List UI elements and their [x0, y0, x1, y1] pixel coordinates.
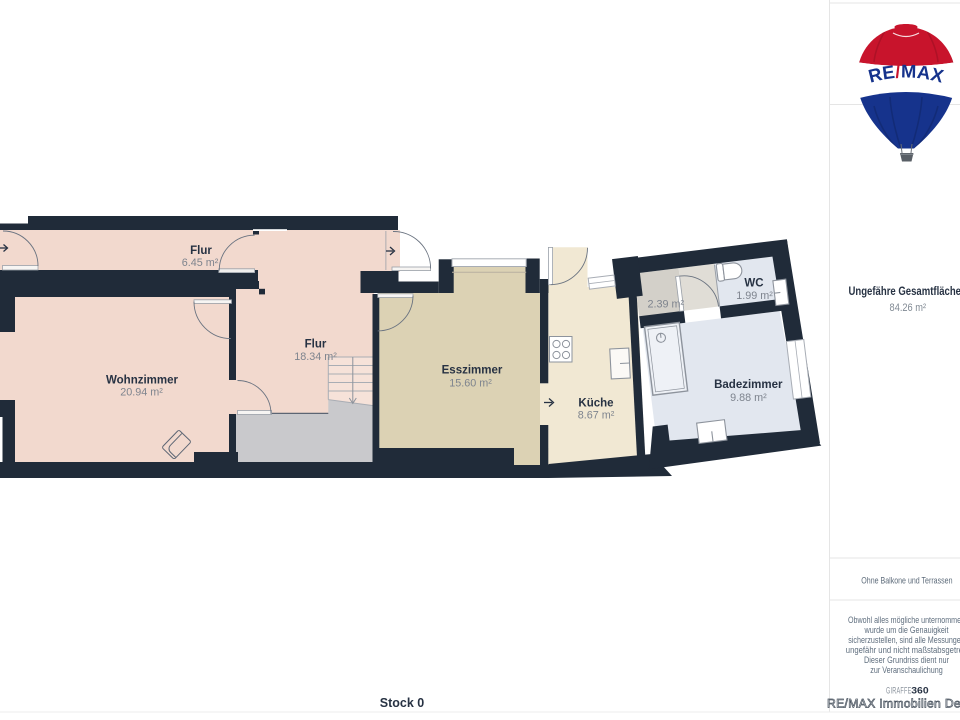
svg-text:Esszimmer: Esszimmer: [442, 364, 503, 376]
svg-text:wurde um die Genauigkeit: wurde um die Genauigkeit: [864, 625, 949, 635]
svg-text:Wohnzimmer: Wohnzimmer: [106, 375, 179, 387]
svg-text:zur Veranschaulichung: zur Veranschaulichung: [870, 665, 943, 675]
svg-text:6.45 m²: 6.45 m²: [182, 257, 219, 269]
svg-text:Badezimmer: Badezimmer: [714, 379, 783, 391]
svg-text:ungefähr und nicht maßstabsget: ungefähr und nicht maßstabsgetreu: [846, 645, 960, 655]
svg-text:20.94 m²: 20.94 m²: [120, 387, 163, 399]
svg-text:2.39 m²: 2.39 m²: [647, 299, 684, 311]
svg-text:sicherzustellen, sind alle Mes: sicherzustellen, sind alle Messungen: [848, 635, 960, 645]
svg-text:GIRAFFE: GIRAFFE: [886, 686, 912, 696]
svg-text:RE/MAX Immobilien Deutschland: RE/MAX Immobilien Deutschland: [827, 696, 960, 710]
svg-text:1.99 m²: 1.99 m²: [736, 290, 773, 302]
svg-text:Flur: Flur: [305, 339, 327, 351]
svg-text:WC: WC: [744, 278, 763, 290]
svg-text:18.34 m²: 18.34 m²: [294, 351, 337, 363]
svg-text:Flur: Flur: [190, 245, 212, 257]
svg-text:Stock 0: Stock 0: [380, 696, 425, 710]
svg-text:Dieser Grundriss dient nur: Dieser Grundriss dient nur: [864, 655, 949, 665]
svg-text:9.88 m²: 9.88 m²: [730, 392, 767, 404]
svg-text:8.67 m²: 8.67 m²: [578, 409, 615, 421]
svg-text:Obwohl alles mögliche unternom: Obwohl alles mögliche unternommen: [848, 615, 960, 625]
svg-text:360: 360: [911, 686, 928, 696]
svg-text:84.26 m²: 84.26 m²: [890, 302, 927, 314]
svg-text:Ungefähre Gesamtfläche: Ungefähre Gesamtfläche: [849, 284, 960, 298]
svg-text:15.60 m²: 15.60 m²: [449, 377, 492, 389]
svg-text:Küche: Küche: [578, 398, 613, 410]
svg-text:Ohne Balkone und Terrassen: Ohne Balkone und Terrassen: [861, 576, 952, 587]
